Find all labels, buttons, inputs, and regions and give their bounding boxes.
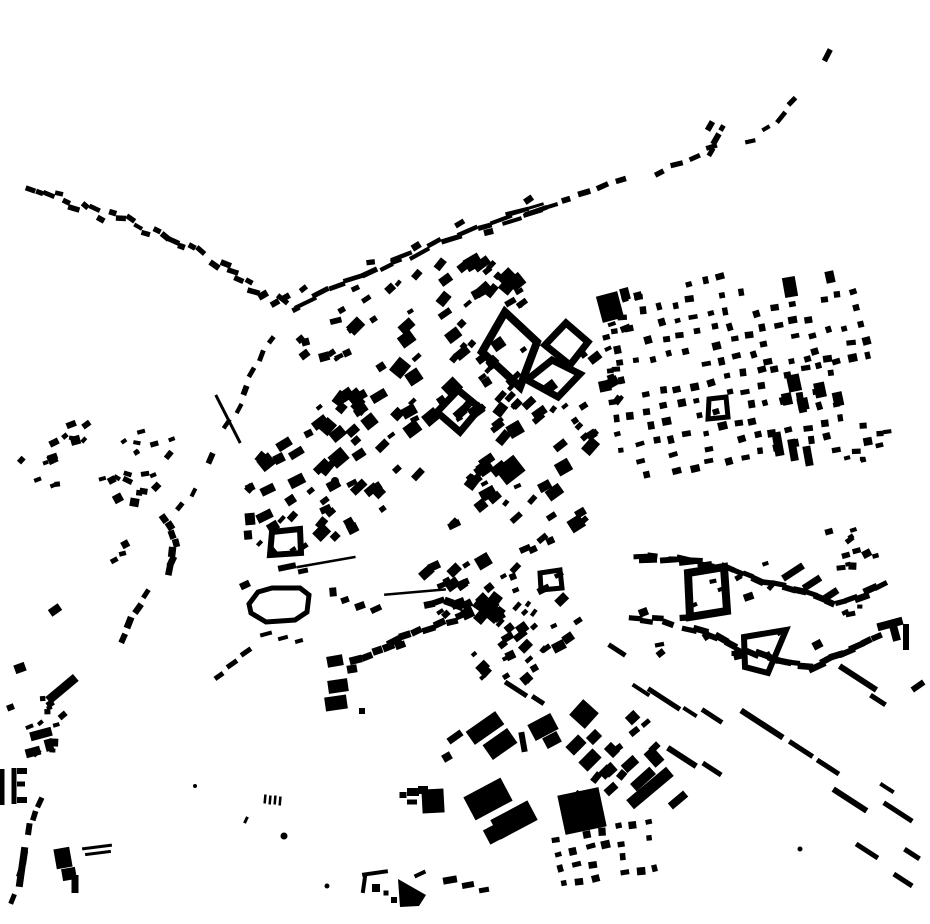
housing-grid-ne (752, 288, 871, 379)
wedge-building (398, 879, 426, 907)
railway-dashes (504, 642, 921, 888)
road-south-tail (118, 588, 150, 644)
hamlet-southwest (6, 696, 68, 758)
core-west (244, 387, 425, 557)
village-courtyard (688, 567, 727, 617)
road-south-buildings (175, 335, 276, 511)
road-west-buildings (25, 185, 289, 305)
core-north-fringe (296, 294, 378, 362)
road-south-chain (159, 513, 181, 576)
church-rows-a (386, 609, 471, 648)
figure-ground-map-page (0, 0, 930, 924)
pair-southwest (110, 539, 131, 564)
buildings-explicit (0, 120, 925, 903)
village-row-north (633, 552, 888, 607)
hamlet-west (17, 420, 175, 508)
pond-outline (249, 588, 309, 622)
grid-east-fringe (831, 423, 891, 463)
church-rows-b (349, 640, 406, 665)
figure-ground-map (0, 0, 930, 924)
arc-ne-buildings (561, 48, 833, 204)
